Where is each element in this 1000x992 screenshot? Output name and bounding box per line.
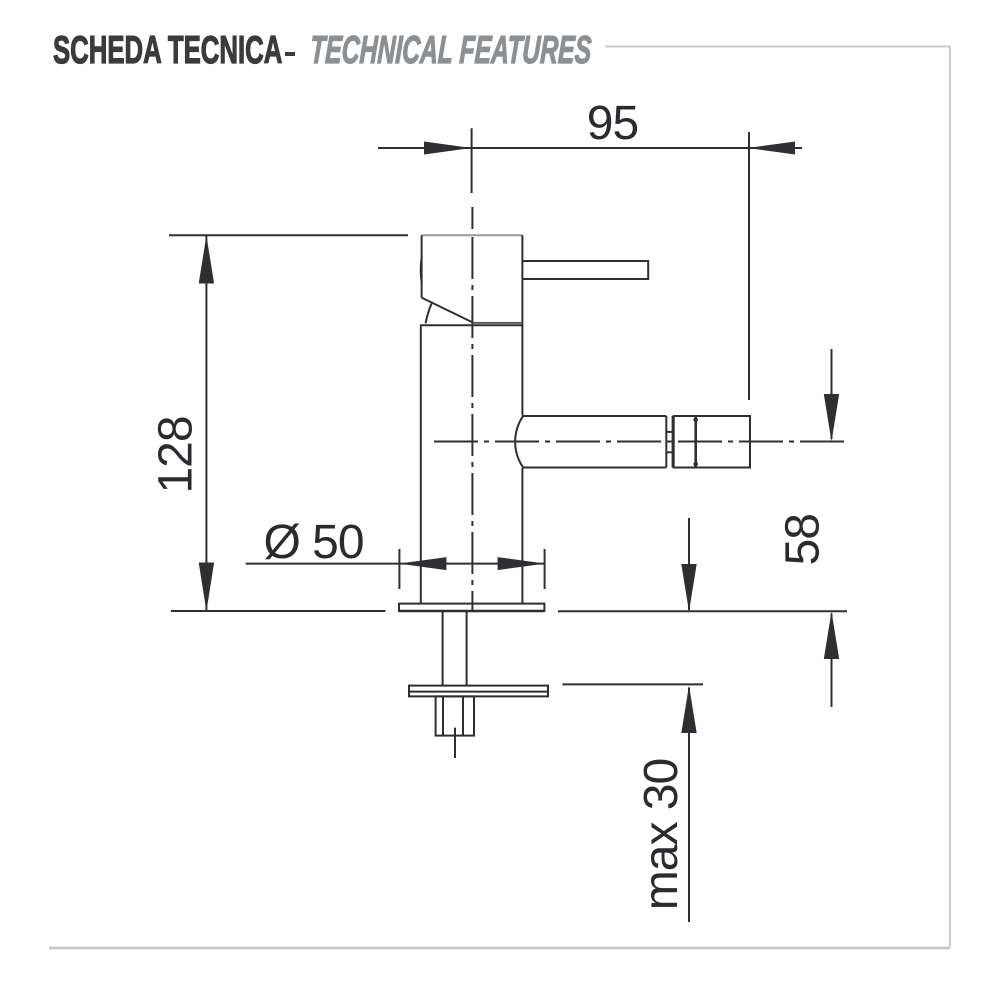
svg-text:Ø 50: Ø 50 <box>263 516 363 569</box>
svg-text:max 30: max 30 <box>635 759 688 910</box>
svg-text:58: 58 <box>777 514 830 565</box>
svg-text:95: 95 <box>587 97 638 150</box>
svg-text:128: 128 <box>150 416 203 493</box>
